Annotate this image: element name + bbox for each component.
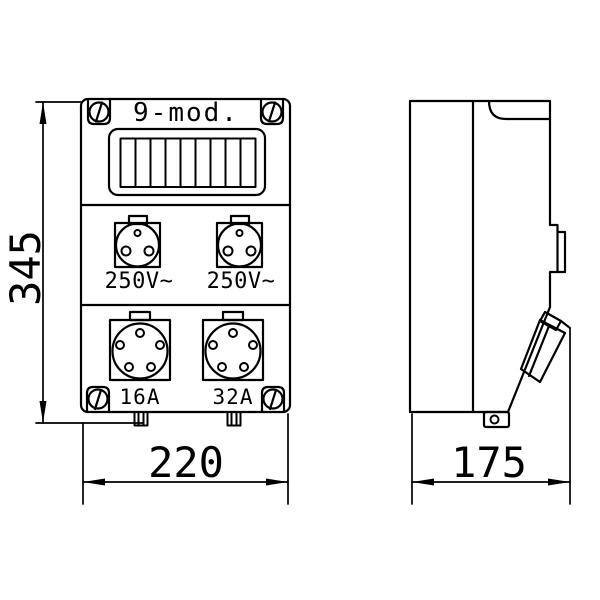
side-angled-socket	[521, 312, 570, 382]
arrow-down-icon	[40, 401, 47, 423]
dimension-height: 345	[1, 102, 143, 423]
side-enclosure-outline	[410, 101, 565, 412]
pin-hole	[145, 247, 154, 256]
socket-16a	[110, 312, 170, 380]
width-value: 220	[148, 438, 224, 487]
pin-hole	[122, 247, 131, 256]
arrow-up-icon	[40, 102, 47, 124]
pin-hole	[135, 230, 141, 236]
module-count-label: 9-mod.	[133, 98, 239, 128]
pin-hole	[125, 363, 133, 371]
socket-32a	[203, 312, 263, 380]
flange-hole	[491, 416, 499, 424]
technical-drawing: 9-mod. 250V~	[0, 0, 600, 600]
pin-hole	[218, 363, 226, 371]
side-lid-line	[489, 101, 550, 119]
dimension-width: 220	[83, 414, 288, 504]
front-view: 9-mod. 250V~	[81, 98, 290, 426]
arrow-right-icon	[266, 479, 288, 486]
module-window	[109, 129, 265, 195]
pin-hole	[116, 341, 124, 349]
pin-hole	[209, 341, 217, 349]
pin-hole	[224, 247, 233, 256]
pin-hole	[147, 363, 155, 371]
socket-32a-label: 32A	[213, 385, 254, 409]
pin-hole	[249, 341, 257, 349]
arrow-left-icon	[412, 479, 434, 486]
pin-hole	[247, 247, 256, 256]
height-value: 345	[1, 230, 50, 306]
socket-250v-2	[217, 216, 262, 267]
socket-250v-1-label: 250V~	[105, 269, 174, 294]
side-mounting-flange	[484, 412, 509, 427]
pin-hole	[229, 329, 237, 337]
socket-250v-1	[115, 216, 160, 267]
screw-bottom-right-icon	[262, 387, 284, 411]
side-view	[410, 101, 570, 427]
screw-top-right-icon	[261, 100, 283, 124]
screw-bottom-left-icon	[87, 387, 109, 411]
socket-16a-label: 16A	[120, 385, 161, 409]
arrow-left-icon	[83, 479, 105, 486]
depth-value: 175	[451, 438, 527, 487]
pin-hole	[240, 363, 248, 371]
mounting-foot-right	[228, 412, 241, 426]
socket-250v-2-label: 250V~	[207, 269, 276, 294]
pin-hole	[156, 341, 164, 349]
drawing-canvas: 9-mod. 250V~	[0, 0, 600, 600]
pin-hole	[237, 230, 243, 236]
screw-top-left-icon	[88, 100, 110, 124]
pin-hole	[136, 329, 144, 337]
arrow-right-icon	[548, 479, 570, 486]
